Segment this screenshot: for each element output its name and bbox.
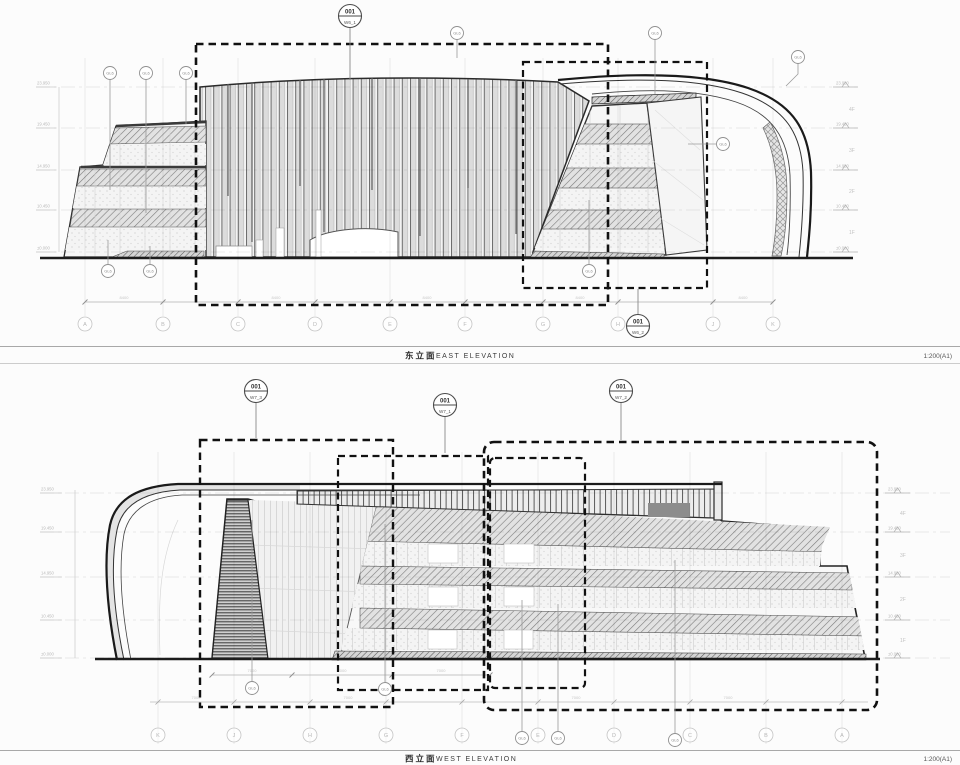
east-title-cn: 东立面 xyxy=(405,351,437,361)
west-datum-right: 23.950 19.450 14.950 10.450 ±0.000 4F 3F… xyxy=(885,487,910,659)
west-callout-right: 001 W7_2 xyxy=(610,380,633,441)
svg-text:GL6: GL6 xyxy=(381,687,389,692)
svg-text:8400: 8400 xyxy=(576,295,586,300)
level-value: 23.950 xyxy=(836,81,849,86)
west-grid-bubbles: K J H G F E D C B A xyxy=(151,728,849,742)
svg-text:3F: 3F xyxy=(900,553,906,559)
svg-text:001: 001 xyxy=(616,385,627,391)
svg-text:GL6: GL6 xyxy=(248,686,256,691)
svg-text:2F: 2F xyxy=(900,597,906,603)
svg-text:001: 001 xyxy=(251,385,262,391)
west-datum-left: 23.950 19.450 14.950 10.450 ±0.000 xyxy=(40,487,75,659)
svg-text:GL6: GL6 xyxy=(794,55,802,60)
svg-text:A: A xyxy=(840,733,844,739)
west-title-en: WEST ELEVATION xyxy=(436,756,517,763)
svg-text:8400: 8400 xyxy=(423,295,433,300)
svg-text:C: C xyxy=(236,322,240,328)
svg-text:10.450: 10.450 xyxy=(37,204,50,209)
svg-text:23.950: 23.950 xyxy=(888,487,901,492)
svg-text:W6_2: W6_2 xyxy=(632,330,644,335)
svg-text:J: J xyxy=(233,733,236,739)
svg-text:GL6: GL6 xyxy=(142,71,150,76)
svg-text:19.450: 19.450 xyxy=(888,526,901,531)
svg-text:001: 001 xyxy=(440,399,451,405)
svg-text:B: B xyxy=(161,322,165,328)
svg-text:7000: 7000 xyxy=(344,695,354,700)
west-scale: 1:200(A1) xyxy=(923,756,952,763)
east-grid-bubbles: A B C D E F G H J K xyxy=(78,317,780,331)
svg-text:G: G xyxy=(384,733,388,739)
svg-text:±0.000: ±0.000 xyxy=(37,246,50,251)
svg-text:8400: 8400 xyxy=(272,295,282,300)
level-value: 10.450 xyxy=(836,204,849,209)
svg-text:K: K xyxy=(771,322,775,328)
svg-text:E: E xyxy=(536,733,540,739)
svg-text:GL6: GL6 xyxy=(182,71,190,76)
svg-text:GL6: GL6 xyxy=(554,736,562,741)
svg-text:GL6: GL6 xyxy=(585,269,593,274)
east-datum-right: 23.950 19.450 14.950 10.450 ±0.000 4F 3F… xyxy=(833,81,858,253)
svg-text:001: 001 xyxy=(345,10,356,16)
elevation-drawing-sheet: 23.950 19.450 14.950 10.450 ±0.000 4F 3F… xyxy=(0,0,960,765)
svg-text:10.450: 10.450 xyxy=(41,614,54,619)
svg-text:8400: 8400 xyxy=(739,295,749,300)
level-value: 14.950 xyxy=(836,164,849,169)
svg-text:GL6: GL6 xyxy=(104,269,112,274)
svg-text:D: D xyxy=(313,322,317,328)
east-callout-bottom: 001 W6_2 xyxy=(627,289,650,338)
svg-text:GL6: GL6 xyxy=(453,31,461,36)
floor-label: 4F xyxy=(849,107,855,113)
east-datum-left: 23.950 19.450 14.950 10.450 ±0.000 xyxy=(36,81,59,253)
svg-text:7000: 7000 xyxy=(572,695,582,700)
svg-text:W7_2: W7_2 xyxy=(615,395,627,400)
east-title-bar: 东立面 EAST ELEVATION 1:200(A1) xyxy=(0,347,960,364)
level-value: 19.450 xyxy=(836,122,849,127)
svg-text:GL6: GL6 xyxy=(651,31,659,36)
east-building xyxy=(40,75,853,258)
svg-text:19.450: 19.450 xyxy=(41,526,54,531)
svg-text:A: A xyxy=(83,322,87,328)
svg-text:7000: 7000 xyxy=(724,695,734,700)
svg-text:J: J xyxy=(712,322,715,328)
svg-text:19.450: 19.450 xyxy=(37,122,50,127)
svg-text:±0.000: ±0.000 xyxy=(41,652,54,657)
svg-text:23.950: 23.950 xyxy=(37,81,50,86)
svg-text:±0.000: ±0.000 xyxy=(888,652,901,657)
svg-text:4F: 4F xyxy=(900,511,906,517)
east-title-en: EAST ELEVATION xyxy=(436,353,515,360)
svg-text:H: H xyxy=(308,733,312,739)
east-callout-top: 001 W6_1 xyxy=(339,5,362,81)
svg-text:23.950: 23.950 xyxy=(41,487,54,492)
svg-text:001: 001 xyxy=(633,320,644,326)
floor-label: 1F xyxy=(849,230,855,236)
floor-label: 3F xyxy=(849,148,855,154)
svg-text:GL6: GL6 xyxy=(518,736,526,741)
level-value: ±0.000 xyxy=(836,246,849,251)
floor-label: 2F xyxy=(849,189,855,195)
west-callout-left: 001 W7_3 xyxy=(245,380,268,439)
svg-text:E: E xyxy=(388,322,392,328)
svg-text:14.950: 14.950 xyxy=(37,164,50,169)
svg-text:8400: 8400 xyxy=(120,295,130,300)
svg-text:GL6: GL6 xyxy=(146,269,154,274)
svg-text:G: G xyxy=(541,322,545,328)
svg-text:GL6: GL6 xyxy=(719,142,727,147)
glass-tag: GL6 xyxy=(106,71,114,76)
svg-text:GL6: GL6 xyxy=(671,738,679,743)
svg-text:14.950: 14.950 xyxy=(41,571,54,576)
svg-text:D: D xyxy=(612,733,616,739)
svg-text:C: C xyxy=(688,733,692,739)
west-elevation: 23.950 19.450 14.950 10.450 ±0.000 4F 3F… xyxy=(40,380,950,747)
svg-text:K: K xyxy=(156,733,160,739)
east-left-wing xyxy=(60,121,210,257)
svg-text:B: B xyxy=(764,733,768,739)
svg-text:W7_1: W7_1 xyxy=(439,409,451,414)
svg-text:W7_3: W7_3 xyxy=(250,395,262,400)
west-title-cn: 西立面 xyxy=(405,754,437,764)
svg-text:7000: 7000 xyxy=(437,668,447,673)
west-callout-mid: 001 W7_1 xyxy=(434,394,457,454)
east-scale: 1:200(A1) xyxy=(923,353,952,360)
east-fin-facade xyxy=(200,78,589,257)
svg-text:W6_1: W6_1 xyxy=(344,20,356,25)
svg-text:14.950: 14.950 xyxy=(888,571,901,576)
east-dimension-line: 8400 8400 8400 8400 8400 xyxy=(83,295,776,305)
west-title-bar: 西立面 WEST ELEVATION 1:200(A1) xyxy=(0,751,960,764)
east-elevation: 23.950 19.450 14.950 10.450 ±0.000 4F 3F… xyxy=(36,5,858,338)
svg-text:10.450: 10.450 xyxy=(888,614,901,619)
svg-text:H: H xyxy=(616,322,620,328)
svg-text:1F: 1F xyxy=(900,638,906,644)
